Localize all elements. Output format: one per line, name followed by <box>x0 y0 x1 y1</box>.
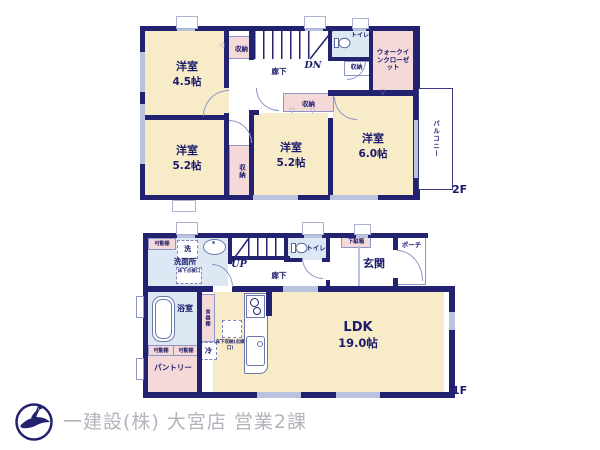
balcony-label: バルコニー <box>431 120 441 158</box>
folding-door-mark: ▽ <box>380 89 385 96</box>
room-size: 5.2帖 <box>276 155 305 170</box>
entrance-step-line <box>358 246 360 286</box>
wall-segment <box>326 280 330 290</box>
window <box>257 392 301 398</box>
floor2-label: 2F <box>452 183 478 197</box>
roof-vent <box>352 18 369 29</box>
walk-in-closet: ウォークインクローゼット <box>373 31 413 90</box>
room-name: 洋室 <box>176 58 198 74</box>
movable-shelf-top: 可動棚 <box>148 238 176 250</box>
faucet-icon <box>212 241 215 244</box>
window <box>449 312 455 330</box>
wall-segment <box>224 31 229 88</box>
floor-plan-canvas: 洋室 4.5帖 洋室 5.2帖 洋室 5.2帖 洋室 6.0帖 トイレ 収納 ウ… <box>0 0 600 450</box>
sliding-door-opening <box>283 286 318 292</box>
wall-segment <box>143 286 213 292</box>
stairs-down-label: DN <box>300 60 326 72</box>
wall-segment <box>449 286 455 398</box>
closet-label: 収納 <box>237 164 247 179</box>
wall-segment <box>284 258 302 262</box>
wall-segment <box>328 90 420 96</box>
balcony: バルコニー <box>418 88 453 190</box>
ldk-label-block: LDK 19.0帖 <box>325 320 391 351</box>
roof-vent <box>354 224 371 235</box>
room-name: 洋室 <box>280 139 302 155</box>
bathroom-label: 浴室 <box>172 304 198 314</box>
cupboard: 食器棚 <box>201 294 215 342</box>
roof-vent <box>304 16 326 29</box>
wall-segment <box>232 286 283 292</box>
stove-icon <box>246 295 265 318</box>
room-name: 洋室 <box>176 142 198 158</box>
window <box>140 52 145 92</box>
ldk-name: LDK <box>325 320 391 335</box>
floor-hatch: 床下点検口 <box>176 267 202 284</box>
floor-storage-label: 床下収納(点検口) <box>215 340 245 352</box>
room-yoshitsu-5-2-mid: 洋室 5.2帖 <box>254 113 328 195</box>
bathtub-icon <box>152 296 175 342</box>
window <box>253 195 298 200</box>
stairs-2f <box>254 31 314 59</box>
walk-in-closet-label: ウォークインクローゼット <box>373 47 413 74</box>
room-size: 4.5帖 <box>172 74 201 89</box>
faucet-icon <box>257 341 263 347</box>
room-size: 6.0帖 <box>358 146 387 161</box>
room-size: 5.2帖 <box>172 158 201 173</box>
pantry <box>148 354 197 392</box>
wall-segment <box>326 236 330 262</box>
wall-segment <box>266 288 272 316</box>
window <box>330 195 378 200</box>
wall-segment <box>249 110 254 196</box>
floor1-label: 1F <box>452 384 478 398</box>
folding-door-mark: ▽ <box>289 108 294 115</box>
hallway-label-2f: 廊下 <box>262 67 296 76</box>
movable-shelf-right: 可動棚 <box>173 345 199 356</box>
toilet-label-1f: トイレ <box>304 244 328 252</box>
pantry-label: パントリー <box>150 363 196 372</box>
folding-door-mark: ▽ <box>310 108 315 115</box>
ldk-size: 19.0帖 <box>325 335 391 351</box>
company-name: 一建設(株) 大宮店 営業2課 <box>63 408 403 436</box>
wall-segment <box>328 90 333 96</box>
burner-icon <box>253 307 261 315</box>
wall-segment <box>249 26 254 60</box>
roof-vent <box>176 222 198 235</box>
roof-vent <box>172 200 196 212</box>
wall-segment <box>393 233 398 250</box>
bathtub-inner <box>155 299 172 339</box>
wall-segment <box>228 256 290 260</box>
hallway-label-1f: 廊下 <box>262 271 296 280</box>
room-yoshitsu-5-2-left: 洋室 5.2帖 <box>145 120 229 195</box>
stairs-1f <box>248 238 288 256</box>
floor-storage-hatch <box>222 320 242 338</box>
room-name: 洋室 <box>362 130 384 146</box>
closet-label: 収納 <box>302 98 315 108</box>
closet-label: 収納 <box>235 43 248 53</box>
wall-segment <box>249 110 259 115</box>
window <box>140 104 145 164</box>
window <box>336 392 380 398</box>
wall-segment <box>328 118 333 196</box>
movable-shelf-left: 可動棚 <box>148 345 174 356</box>
roof-vent <box>302 222 324 235</box>
toilet-label-2f: トイレ <box>349 32 371 40</box>
roof-vent <box>176 16 198 29</box>
burner-icon <box>250 298 259 307</box>
wall-segment <box>369 26 373 90</box>
kitchen-sink-icon <box>246 336 265 366</box>
washroom-label: 洗面所 <box>163 257 207 266</box>
company-logo-bird-icon <box>12 400 56 444</box>
wall-segment <box>393 278 398 290</box>
window <box>136 296 144 318</box>
folding-door-mark: ◁ <box>219 42 224 49</box>
entrance-label: 玄関 <box>358 257 390 271</box>
wall-segment <box>318 286 449 292</box>
window <box>136 358 144 380</box>
wall-segment <box>328 26 332 61</box>
wall-segment <box>197 288 202 392</box>
